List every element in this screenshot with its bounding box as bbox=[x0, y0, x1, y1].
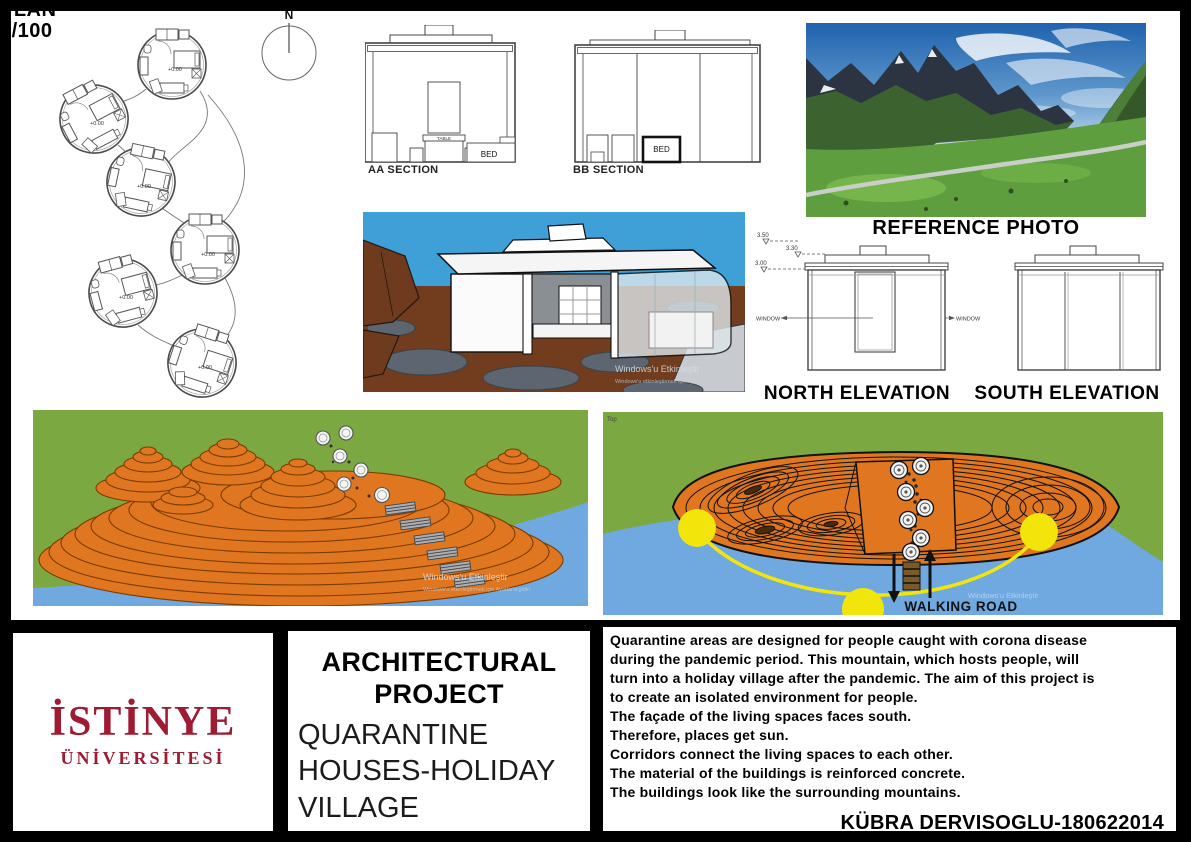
description-line: during the pandemic period. This mountai… bbox=[610, 650, 1168, 669]
window-label-right: WINDOW bbox=[956, 317, 981, 323]
project-name-line1: QUARANTINE bbox=[298, 717, 582, 754]
section-aa-drawing: TABLE BED bbox=[365, 25, 520, 165]
section-bb-drawing: BED bbox=[568, 30, 768, 165]
compass-n-label: N bbox=[285, 8, 294, 22]
south-elevation-label: SOUTH ELEVATION bbox=[968, 383, 1166, 405]
university-subtitle: ÜNİVERSİTESİ bbox=[60, 748, 225, 769]
site-plan-image: WALKING ROAD Top Windows'u Etkinleştir bbox=[603, 412, 1163, 615]
level-label: +0.00 bbox=[90, 121, 104, 127]
watermark-line1: Windows'u Etkinleştir bbox=[423, 572, 508, 582]
north-elevation-label: NORTH ELEVATION bbox=[758, 383, 956, 405]
project-title-box: ARCHITECTURAL PROJECT QUARANTINE HOUSES-… bbox=[288, 631, 590, 831]
project-type-line1: ARCHITECTURAL bbox=[296, 647, 582, 679]
bed-label: BED bbox=[653, 145, 670, 154]
level-label: +0.00 bbox=[119, 295, 133, 301]
viewport-label: Top bbox=[607, 417, 617, 423]
level-350: 3.50 bbox=[757, 233, 769, 239]
description-line: to create an isolated environment for pe… bbox=[610, 688, 1168, 707]
bed-label: BED bbox=[481, 150, 498, 159]
north-arrow-icon: N bbox=[262, 8, 316, 80]
university-name: İSTİNYE bbox=[50, 698, 237, 746]
description-line: The buildings look like the surrounding … bbox=[610, 783, 1168, 802]
university-logo: İSTİNYE ÜNİVERSİTESİ bbox=[13, 633, 273, 833]
description-line: Corridors connect the living spaces to e… bbox=[610, 745, 1168, 764]
level-label: +0.00 bbox=[137, 184, 151, 190]
level-label: +0.00 bbox=[168, 67, 182, 73]
project-name-line2: HOUSES-HOLIDAY bbox=[298, 753, 582, 790]
watermark-line2: Windows'u etkinleştirmek için Ayarlar'a … bbox=[423, 587, 532, 593]
project-description-box: Quarantine areas are designed for people… bbox=[603, 627, 1176, 838]
presentation-board: +0.00 +0.00 +0.00 +0.00 +0.00 +0.00 N PL… bbox=[0, 0, 1191, 842]
north-elevation-drawing: 3.50 3.30 3.00 WINDOW WINDOW bbox=[755, 228, 1000, 378]
walking-road-label: WALKING ROAD bbox=[904, 599, 1017, 614]
house-render-image: Windows'u Etkinleştir Windows'u etkinleş… bbox=[363, 212, 745, 392]
author-name: KÜBRA DERVISOGLU-180622014 bbox=[610, 812, 1168, 835]
description-line: Quarantine areas are designed for people… bbox=[610, 631, 1168, 650]
description-line: Therefore, places get sun. bbox=[610, 726, 1168, 745]
title-block: İSTİNYE ÜNİVERSİTESİ ARCHITECTURAL PROJE… bbox=[0, 620, 1191, 842]
level-330: 3.30 bbox=[786, 246, 798, 252]
level-label: +0.00 bbox=[201, 252, 215, 258]
floor-plan-drawing: +0.00 +0.00 +0.00 +0.00 +0.00 +0.00 N bbox=[10, 5, 360, 410]
level-label: +0.00 bbox=[198, 365, 212, 371]
description-line: The façade of the living spaces faces so… bbox=[610, 707, 1168, 726]
section-bb-label: BB SECTION bbox=[573, 164, 644, 176]
watermark-line1: Windows'u Etkinleştir bbox=[968, 591, 1039, 600]
south-elevation-drawing bbox=[1008, 228, 1166, 378]
project-name-line3: VILLAGE bbox=[298, 790, 582, 827]
reference-photo-image bbox=[806, 23, 1146, 217]
watermark-line2: Windows'u etkinleştirmek için Ayarlar'a … bbox=[615, 379, 724, 385]
table-label: TABLE bbox=[437, 136, 451, 141]
level-300: 3.00 bbox=[755, 261, 767, 267]
section-aa-label: AA SECTION bbox=[368, 164, 438, 176]
terrain-render-image: Windows'u Etkinleştir Windows'u etkinleş… bbox=[33, 410, 588, 606]
description-line: The material of the buildings is reinfor… bbox=[610, 764, 1168, 783]
circular-house-plans bbox=[47, 29, 245, 406]
watermark-line1: Windows'u Etkinleştir bbox=[615, 364, 700, 374]
window-label-left: WINDOW bbox=[756, 317, 781, 323]
description-line: turn into a holiday village after the pa… bbox=[610, 669, 1168, 688]
project-type-line2: PROJECT bbox=[296, 679, 582, 711]
